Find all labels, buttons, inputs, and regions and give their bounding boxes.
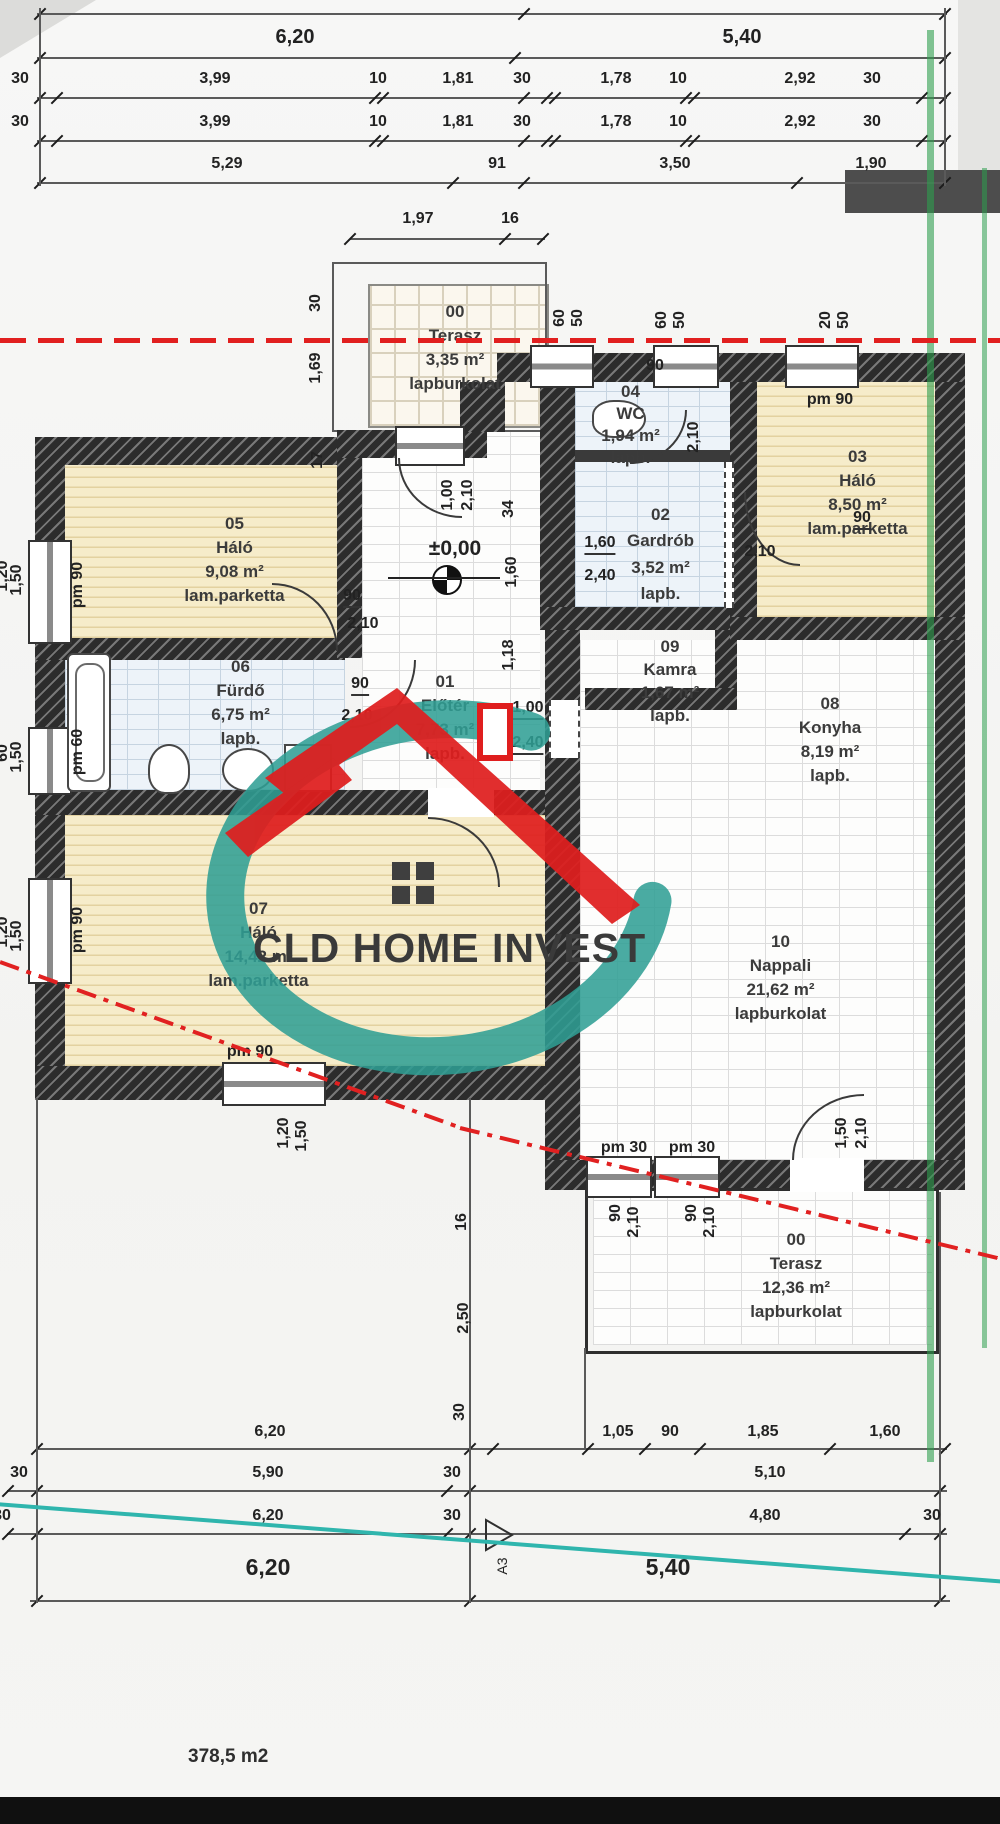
window-grid-icon: [392, 862, 434, 904]
window-halo7: [28, 878, 72, 984]
gardrob-sliding-door: [724, 462, 734, 608]
green-boundary-line-1: [927, 30, 934, 1462]
room-label-terasz-top: 00Terasz 3,35 m²lapburkolat: [395, 300, 515, 397]
room-label-wc: 04WC 1,94 m²lapb.: [588, 381, 673, 469]
chimney-icon: [480, 706, 510, 758]
scan-corner-artifact: [0, 0, 96, 58]
level-mark: ±0,00: [429, 538, 481, 559]
watermark-text: CLD HOME INVEST: [253, 928, 646, 969]
room-label-halo5: 05Háló 9,08 m²lam.parketta: [172, 512, 297, 609]
terrace-door-gap: [790, 1158, 864, 1192]
room-label-terasz-bottom: 00Terasz 12,36 m²lapburkolat: [732, 1228, 860, 1325]
watermark-logo: [170, 640, 700, 1100]
room-label-gardrob: 02Gardrób 3,52 m²lapb.: [608, 502, 713, 607]
room-label-nappali: 10Nappali 21,62 m²lapburkolat: [718, 930, 843, 1027]
floor-plan-page: 00Terasz 3,35 m²lapburkolat 05Háló 9,08 …: [0, 0, 1000, 1824]
sheet-label: A3: [495, 1557, 509, 1574]
room-label-konyha: 08Konyha 8,19 m²lapb.: [775, 692, 885, 789]
level-marker-icon: [432, 565, 462, 595]
bottom-black-bar: [0, 1797, 1000, 1824]
total-area-label: 378,5 m2: [188, 1746, 268, 1768]
window-halo3-top: [785, 345, 859, 388]
window-halo5: [28, 540, 72, 644]
red-dashed-setback-line: [0, 338, 1000, 343]
scan-edge-artifact: [958, 0, 1000, 170]
green-boundary-line-2: [982, 168, 987, 1348]
window-furdo: [28, 727, 72, 795]
window-wc-top: [530, 345, 594, 388]
top-right-dark-bar: [845, 170, 1000, 213]
